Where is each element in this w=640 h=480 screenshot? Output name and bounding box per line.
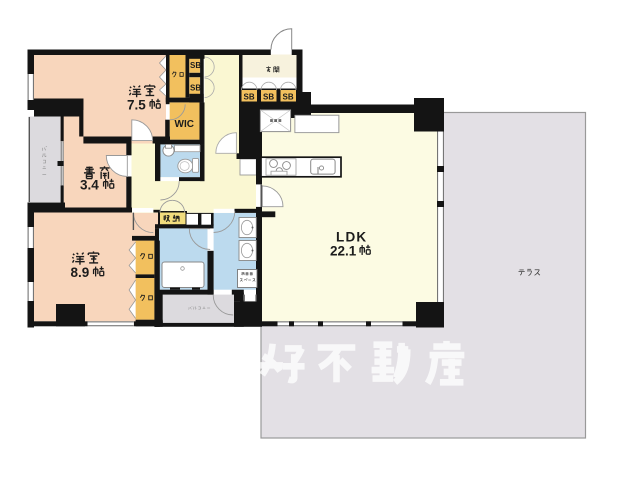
svg-text:22.1: 22.1	[330, 244, 357, 259]
svg-text:LDK: LDK	[336, 230, 367, 245]
svg-text:SB: SB	[190, 61, 201, 70]
svg-text:SB: SB	[190, 84, 201, 93]
svg-text:WIC: WIC	[175, 119, 194, 130]
svg-text:SB: SB	[244, 93, 255, 102]
svg-text:3.4: 3.4	[80, 178, 99, 193]
svg-text:7.5: 7.5	[127, 98, 146, 113]
svg-text:SB: SB	[283, 93, 294, 102]
svg-text:SB: SB	[263, 93, 274, 102]
svg-text:8.9: 8.9	[71, 265, 90, 280]
